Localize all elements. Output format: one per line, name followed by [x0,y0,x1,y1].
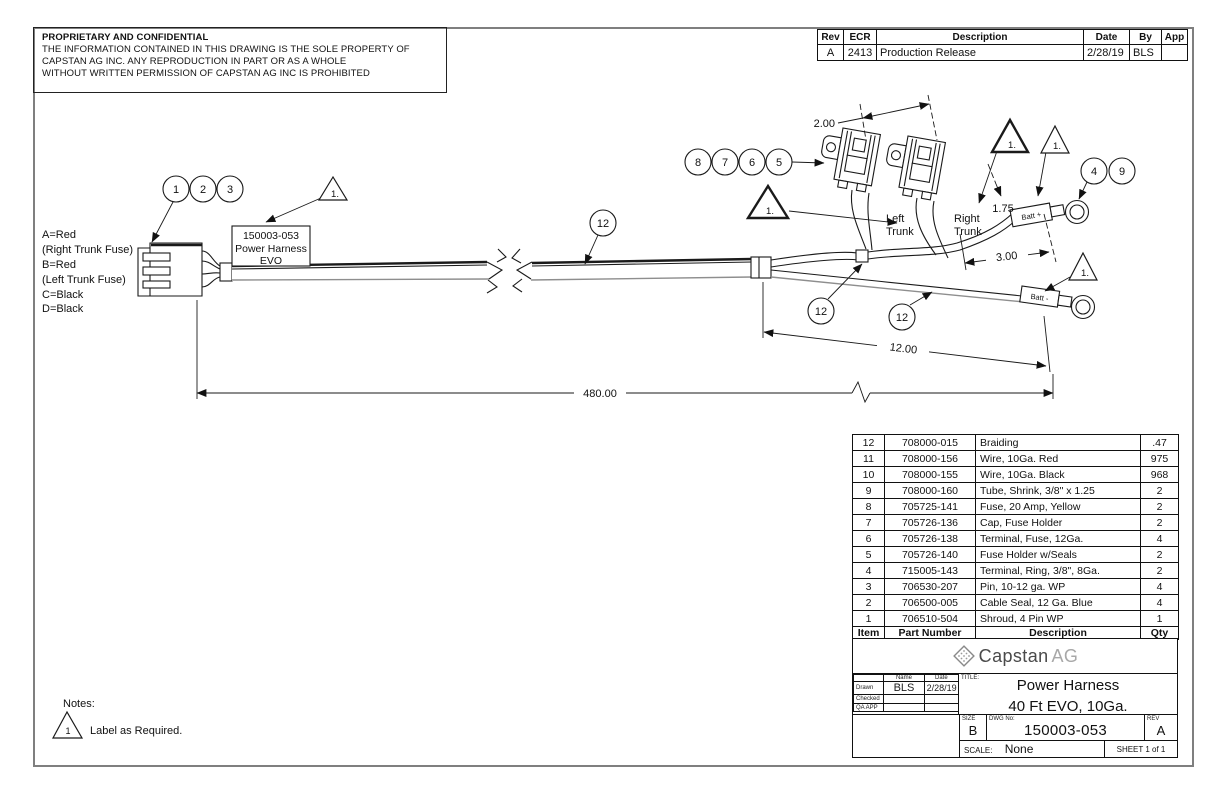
dwg-cell: DWG No: 150003-053 [987,715,1145,740]
balloon-5: 5 [776,157,782,169]
bom-qty: 2 [1141,483,1179,499]
bom-part: 708000-156 [885,451,976,467]
bom-row: 5 705726-140 Fuse Holder w/Seals 2 [853,547,1179,563]
bom-item: 11 [853,451,885,467]
drawing-title-line1: Power Harness [959,677,1177,695]
balloon-2: 2 [200,184,206,196]
bom-desc: Fuse, 20 Amp, Yellow [976,499,1141,515]
lower-row: SIZE B DWG No: 150003-053 REV A SCALE: N… [853,715,1177,757]
bom-row: 12 708000-015 Braiding .47 [853,435,1179,451]
svg-text:Trunk: Trunk [886,226,914,238]
bom-desc: Braiding [976,435,1141,451]
sign-checked-row: Checked [854,695,959,704]
bom-qty: 968 [1141,467,1179,483]
signature-table: Name Date Drawn BLS 2/28/19 Checked QA A… [853,674,959,714]
label-flag-2: 1. [748,186,897,223]
balloon-7: 7 [722,157,728,169]
sheet-cell: SHEET 1 of 1 [1104,741,1177,757]
svg-text:Right: Right [954,213,980,225]
size-value: B [960,723,986,738]
label-flag-3: 1. [979,120,1028,203]
pin-legend-line: (Left Trunk Fuse) [42,274,126,286]
balloon-12-main: 12 [585,210,616,264]
pin-legend-line: C=Black [42,289,84,301]
scale-cell: SCALE: None [960,742,1104,756]
bom-item: 2 [853,595,885,611]
drawing-sheet: { "colors": {"line":"#1a1a1a","frame":"#… [0,0,1224,792]
bom-row: 9 708000-160 Tube, Shrink, 3/8" x 1.25 2 [853,483,1179,499]
drawn-date: 2/28/19 [924,682,958,695]
size-cell: SIZE B [960,715,987,740]
label-flag-1: 1. [266,177,347,222]
rev-caption: REV [1147,716,1159,722]
logo-row: CapstanAG [853,639,1177,674]
bom-qty: 1 [1141,611,1179,627]
ring-terminal-positive [1066,201,1089,224]
dwg-caption: DWG No: [989,716,1015,722]
bom-item: 4 [853,563,885,579]
bom-row: 4 715005-143 Terminal, Ring, 3/8", 8Ga. … [853,563,1179,579]
number-block: SIZE B DWG No: 150003-053 REV A SCALE: N… [960,715,1177,757]
bom-desc: Cap, Fuse Holder [976,515,1141,531]
dim-fuse-spacing-text: 2.00 [814,118,835,130]
rev-value: A [1145,723,1177,738]
batt-minus-label: Batt - [1020,286,1073,309]
dim-batt-lead: 1.75 [988,164,1014,215]
logo-text: Capstan [979,646,1049,667]
sign-blank [854,675,884,682]
balloon-4: 4 [1091,166,1097,178]
drawing-title-line2: 40 Ft EVO, 10Ga. [959,698,1177,716]
bom-part: 708000-015 [885,435,976,451]
bom-qty: 2 [1141,515,1179,531]
balloon-1: 1 [173,184,179,196]
notes-header: Notes: [63,698,95,710]
checked-date [924,695,958,704]
bom-item: 6 [853,531,885,547]
balloon-group-49: 4 9 [1079,158,1135,199]
bom-part: 708000-155 [885,467,976,483]
bom-item: 1 [853,611,885,627]
bom-part: 705726-138 [885,531,976,547]
capstan-logo-icon [952,644,976,668]
bom-part: 706500-005 [885,595,976,611]
svg-text:1.: 1. [1008,140,1016,151]
bom-row: 3 706530-207 Pin, 10-12 ga. WP 4 [853,579,1179,595]
svg-text:12: 12 [815,306,827,318]
svg-text:Power Harness: Power Harness [235,243,307,255]
qa-label: QA APP [854,704,884,712]
main-harness [232,249,771,293]
bom-desc: Tube, Shrink, 3/8" x 1.25 [976,483,1141,499]
pin-legend-line: D=Black [42,303,84,315]
fuse-holder-left [816,125,880,193]
bom-qty: 2 [1141,499,1179,515]
bom-qty: 4 [1141,531,1179,547]
right-trunk-label: Right Trunk [954,213,982,238]
bom-qty: 975 [1141,451,1179,467]
bom-desc: Shroud, 4 Pin WP [976,611,1141,627]
svg-text:1.: 1. [331,189,339,200]
bom-part: 705726-136 [885,515,976,531]
note-text: Label as Required. [90,725,182,737]
checked-name [884,695,924,704]
bom-desc: Fuse Holder w/Seals [976,547,1141,563]
scale-row: SCALE: None SHEET 1 of 1 [960,741,1177,757]
bom-row: 8 705725-141 Fuse, 20 Amp, Yellow 2 [853,499,1179,515]
bom-part: 705726-140 [885,547,976,563]
balloon-group-123: 1 2 3 [152,176,243,242]
sign-drawn-row: Drawn BLS 2/28/19 [854,682,959,695]
bom-desc: Terminal, Fuse, 12Ga. [976,531,1141,547]
balloon-9: 9 [1119,166,1125,178]
bom-row: 6 705726-138 Terminal, Fuse, 12Ga. 4 [853,531,1179,547]
bom-qty: 4 [1141,579,1179,595]
pin-legend-line: B=Red [42,259,76,271]
bom-item: 10 [853,467,885,483]
bom-part: 706510-504 [885,611,976,627]
batt-plus-label: Batt + [1010,201,1065,227]
balloon-6: 6 [749,157,755,169]
svg-text:1.: 1. [1053,141,1061,152]
note-flag-number: 1 [65,726,70,736]
bom-item: 7 [853,515,885,531]
sign-qa-row: QA APP [854,704,959,712]
sign-date-header: Date [924,675,958,682]
dim-ring-lead-text: 3.00 [995,250,1018,264]
negative-branch [771,270,1024,302]
balloon-12-negative: 12 [889,292,932,330]
bom-item: 5 [853,547,885,563]
bom-qty: 2 [1141,563,1179,579]
qa-date [924,704,958,712]
bom-row: 7 705726-136 Cap, Fuse Holder 2 [853,515,1179,531]
bom-part: 708000-160 [885,483,976,499]
bom-desc: Wire, 10Ga. Black [976,467,1141,483]
svg-text:EVO: EVO [260,255,282,267]
bom-qty: 4 [1141,595,1179,611]
bom-row: 2 706500-005 Cable Seal, 12 Ga. Blue 4 [853,595,1179,611]
bom-item: 3 [853,579,885,595]
title-block: CapstanAG Name Date Drawn BLS 2/28/19 Ch… [852,638,1178,758]
dim-overall-text: 480.00 [583,388,617,400]
label-flag-4: 1. [1038,126,1069,196]
harness-label-box: 150003-053 Power Harness EVO [232,226,310,267]
drawn-name: BLS [884,682,924,695]
label-flag-5: 1. [1045,253,1097,291]
dim-batt-lead-text: 1.75 [992,203,1013,215]
drawn-label: Drawn [854,682,884,695]
bom-part: 706530-207 [885,579,976,595]
svg-text:Trunk: Trunk [954,226,982,238]
pin-legend: A=Red (Right Trunk Fuse) B=Red (Left Tru… [42,229,133,315]
notes: Notes: 1 Label as Required. [53,698,182,738]
bom-desc: Pin, 10-12 ga. WP [976,579,1141,595]
balloon-3: 3 [227,184,233,196]
bom-qty: 2 [1141,547,1179,563]
connector-4pin [138,243,232,296]
sign-name-header: Name [884,675,924,682]
balloon-12-branch: 12 [808,264,862,324]
scale-caption: SCALE: [964,746,992,755]
svg-text:12: 12 [896,312,908,324]
bom-row: 10 708000-155 Wire, 10Ga. Black 968 [853,467,1179,483]
dwg-number: 150003-053 [987,722,1144,739]
bom-row: 1 706510-504 Shroud, 4 Pin WP 1 [853,611,1179,627]
bom-table: 12 708000-015 Braiding .47 11 708000-156… [852,434,1179,640]
rev-cell: REV A [1145,715,1177,740]
ring-terminal-negative [1072,296,1095,319]
bom-part: 715005-143 [885,563,976,579]
title-caption: TITLE: [961,675,979,681]
logo-suffix: AG [1052,646,1079,667]
sign-header-row: Name Date [854,675,959,682]
checked-label: Checked [854,695,884,704]
pin-legend-line: A=Red [42,229,76,241]
bom-item: 9 [853,483,885,499]
balloon-8: 8 [695,157,701,169]
fuse-holder-right [881,133,945,201]
empty-cell [853,715,960,757]
left-trunk-label: Left Trunk [886,213,914,238]
scale-value: None [1005,742,1034,756]
bom-desc: Wire, 10Ga. Red [976,451,1141,467]
svg-text:1.: 1. [1081,268,1089,279]
size-caption: SIZE [962,716,975,722]
title-cell: TITLE: Power Harness 40 Ft EVO, 10Ga. [959,674,1177,714]
svg-text:150003-053: 150003-053 [243,230,299,242]
bom-item: 8 [853,499,885,515]
bom-item: 12 [853,435,885,451]
svg-text:12: 12 [597,218,609,230]
bom-desc: Cable Seal, 12 Ga. Blue [976,595,1141,611]
size-row: SIZE B DWG No: 150003-053 REV A [960,715,1177,741]
bom-row: 11 708000-156 Wire, 10Ga. Red 975 [853,451,1179,467]
pin-legend-line: (Right Trunk Fuse) [42,244,133,256]
title-row: Name Date Drawn BLS 2/28/19 Checked QA A… [853,674,1177,715]
bom-desc: Terminal, Ring, 3/8", 8Ga. [976,563,1141,579]
balloon-group-8765: 8 7 6 5 [685,149,824,175]
qa-name [884,704,924,712]
bom-qty: .47 [1141,435,1179,451]
bom-part: 705725-141 [885,499,976,515]
svg-text:1.: 1. [766,206,774,217]
